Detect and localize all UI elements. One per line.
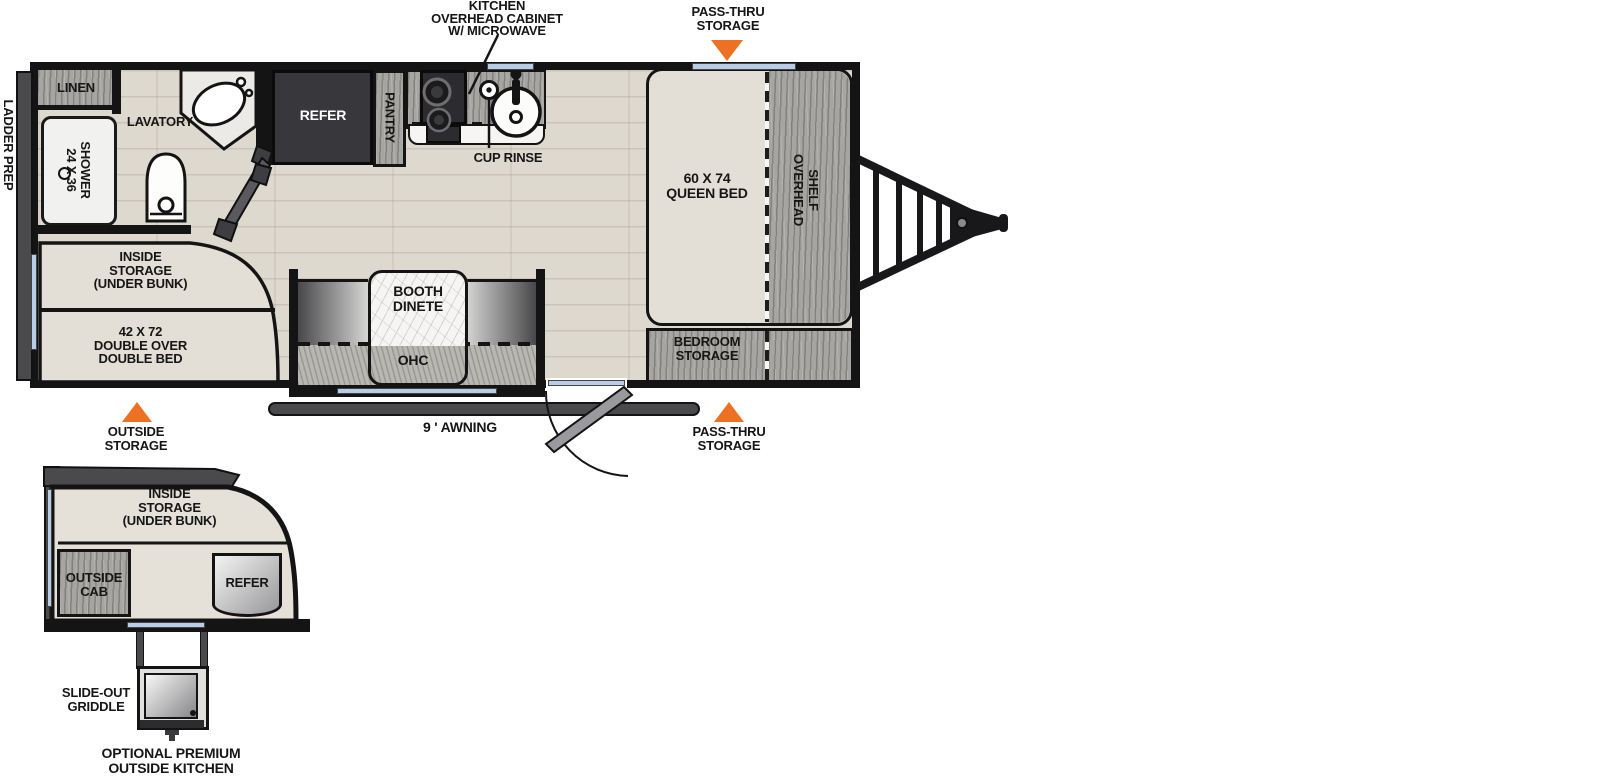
outside-storage-marker [122, 402, 152, 422]
cup-rinse-center [486, 87, 491, 92]
griddle-rail-left [136, 631, 144, 669]
linen-label: LINEN [39, 81, 113, 95]
pass-thru-hatch-top [692, 63, 796, 70]
outside-cab-label: OUTSIDE CAB [58, 571, 130, 598]
kitchen-window [487, 63, 534, 70]
double-bed-label: 42 X 72 DOUBLE OVER DOUBLE BED [58, 325, 223, 366]
griddle-dot [190, 710, 196, 716]
queen-bed-label: 60 X 74 QUEEN BED [637, 171, 777, 201]
kitchen-faucet [512, 79, 520, 105]
optional-caption: OPTIONAL PREMIUM OUTSIDE KITCHEN [63, 746, 279, 776]
bath-door-hinge-bottom [214, 219, 237, 241]
coupler-pin [957, 218, 967, 228]
entry-door-threshold [548, 380, 625, 386]
cup-rinse-label: CUP RINSE [458, 151, 558, 165]
bathroom-bottom-wall [38, 225, 191, 234]
pantry-label: PANTRY [382, 72, 397, 164]
optional-left-window [47, 489, 52, 607]
kitchen-faucet-head [511, 69, 522, 80]
optional-refer-label: REFER [212, 576, 282, 590]
pass-thru-top-marker [711, 40, 743, 61]
coupler-cap [999, 214, 1008, 232]
griddle-front-bar [140, 720, 204, 728]
outside-storage-label: OUTSIDE STORAGE [76, 425, 196, 452]
kitchen-overhead-note: KITCHEN OVERHEAD CABINET W/ MICROWAVE [417, 0, 577, 38]
optional-bottom-window [127, 622, 205, 628]
dinette-window [337, 388, 497, 394]
sink-knob-1 [237, 78, 245, 86]
optional-inside-storage-label: INSIDE STORAGE (UNDER BUNK) [92, 487, 247, 528]
pass-thru-bottom-label: PASS-THRU STORAGE [669, 425, 789, 452]
bedroom-storage-label: BEDROOM STORAGE [647, 335, 767, 362]
awning-label: 9 ' AWNING [385, 420, 535, 435]
shape-overlay [0, 0, 1600, 778]
inside-storage-label: INSIDE STORAGE (UNDER BUNK) [58, 250, 223, 291]
shower-label: SHOWER 24 X 36 [64, 118, 92, 222]
griddle-rail-right [200, 631, 208, 669]
floorplan-canvas: KITCHEN OVERHEAD CABINET W/ MICROWAVE PA… [0, 0, 1600, 778]
overhead-shelf-label: SHELF OVERHEAD [791, 130, 821, 250]
burner-small-center [434, 115, 444, 125]
ladder-prep-label: LADDER PREP [0, 90, 15, 200]
refer-label: REFER [273, 108, 373, 123]
refer-hinge [251, 164, 271, 185]
pass-thru-top-label: PASS-THRU STORAGE [668, 5, 788, 32]
entry-door-leaf [546, 387, 632, 452]
toilet-flush [159, 198, 173, 212]
burner-large-center [431, 86, 443, 98]
slide-out-griddle-label: SLIDE-OUT GRIDDLE [36, 686, 156, 713]
bath-wall [256, 70, 265, 148]
booth-dinette-label: BOOTH DINETE [368, 284, 468, 314]
sink-knob-2 [246, 90, 252, 96]
lavatory-label: LAVATORY [120, 115, 200, 129]
pass-thru-bottom-marker [714, 402, 744, 422]
rear-window [31, 254, 37, 350]
ohc-label: OHC [383, 353, 443, 368]
kitchen-sink-drain [511, 112, 522, 123]
griddle-knob-stem [169, 734, 175, 741]
